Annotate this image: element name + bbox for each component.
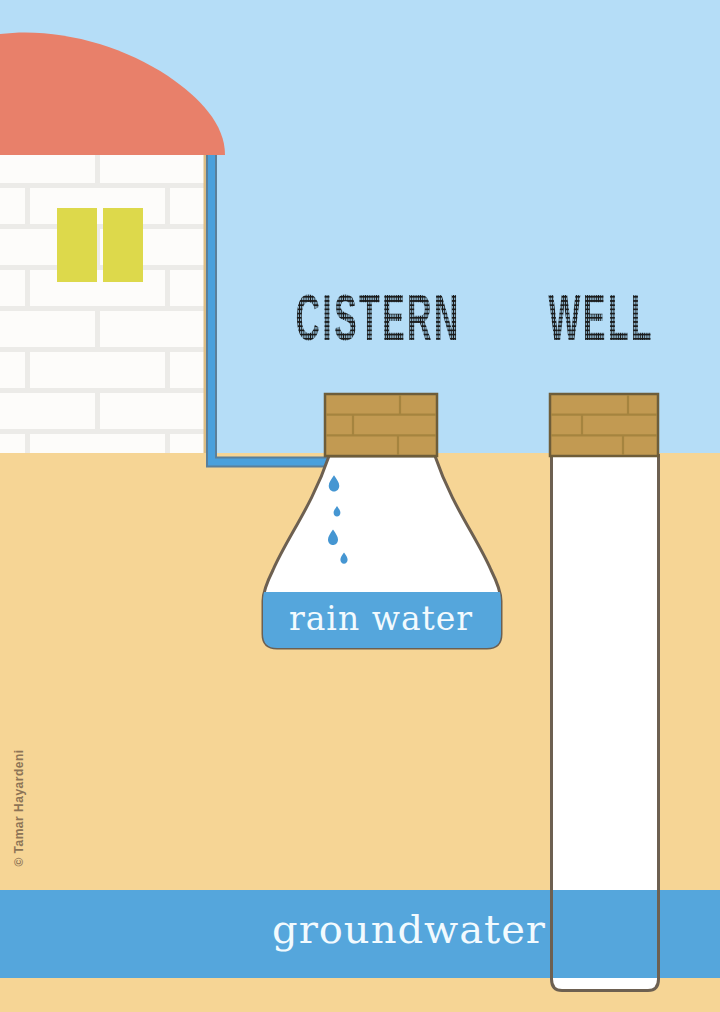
house-window-left xyxy=(57,208,97,282)
infographic-canvas: CISTERN WELL rain water groundwater © Ta… xyxy=(0,0,720,1012)
diagram-scene xyxy=(0,0,720,1012)
house-wall xyxy=(0,153,206,453)
groundwater-label: groundwater xyxy=(272,909,546,949)
cistern-brick-cap xyxy=(325,394,437,456)
copyright-credit: © Tamar Hayardeni xyxy=(12,749,26,866)
house xyxy=(0,153,207,453)
house-window-right xyxy=(103,208,143,282)
well-brick-cap xyxy=(550,394,658,456)
well-title: WELL xyxy=(548,285,653,350)
cistern-cap-bricks xyxy=(325,394,437,456)
cistern-title: CISTERN xyxy=(295,285,460,350)
rain-water-label: rain water xyxy=(289,602,473,635)
well-cap-bricks xyxy=(550,394,658,456)
